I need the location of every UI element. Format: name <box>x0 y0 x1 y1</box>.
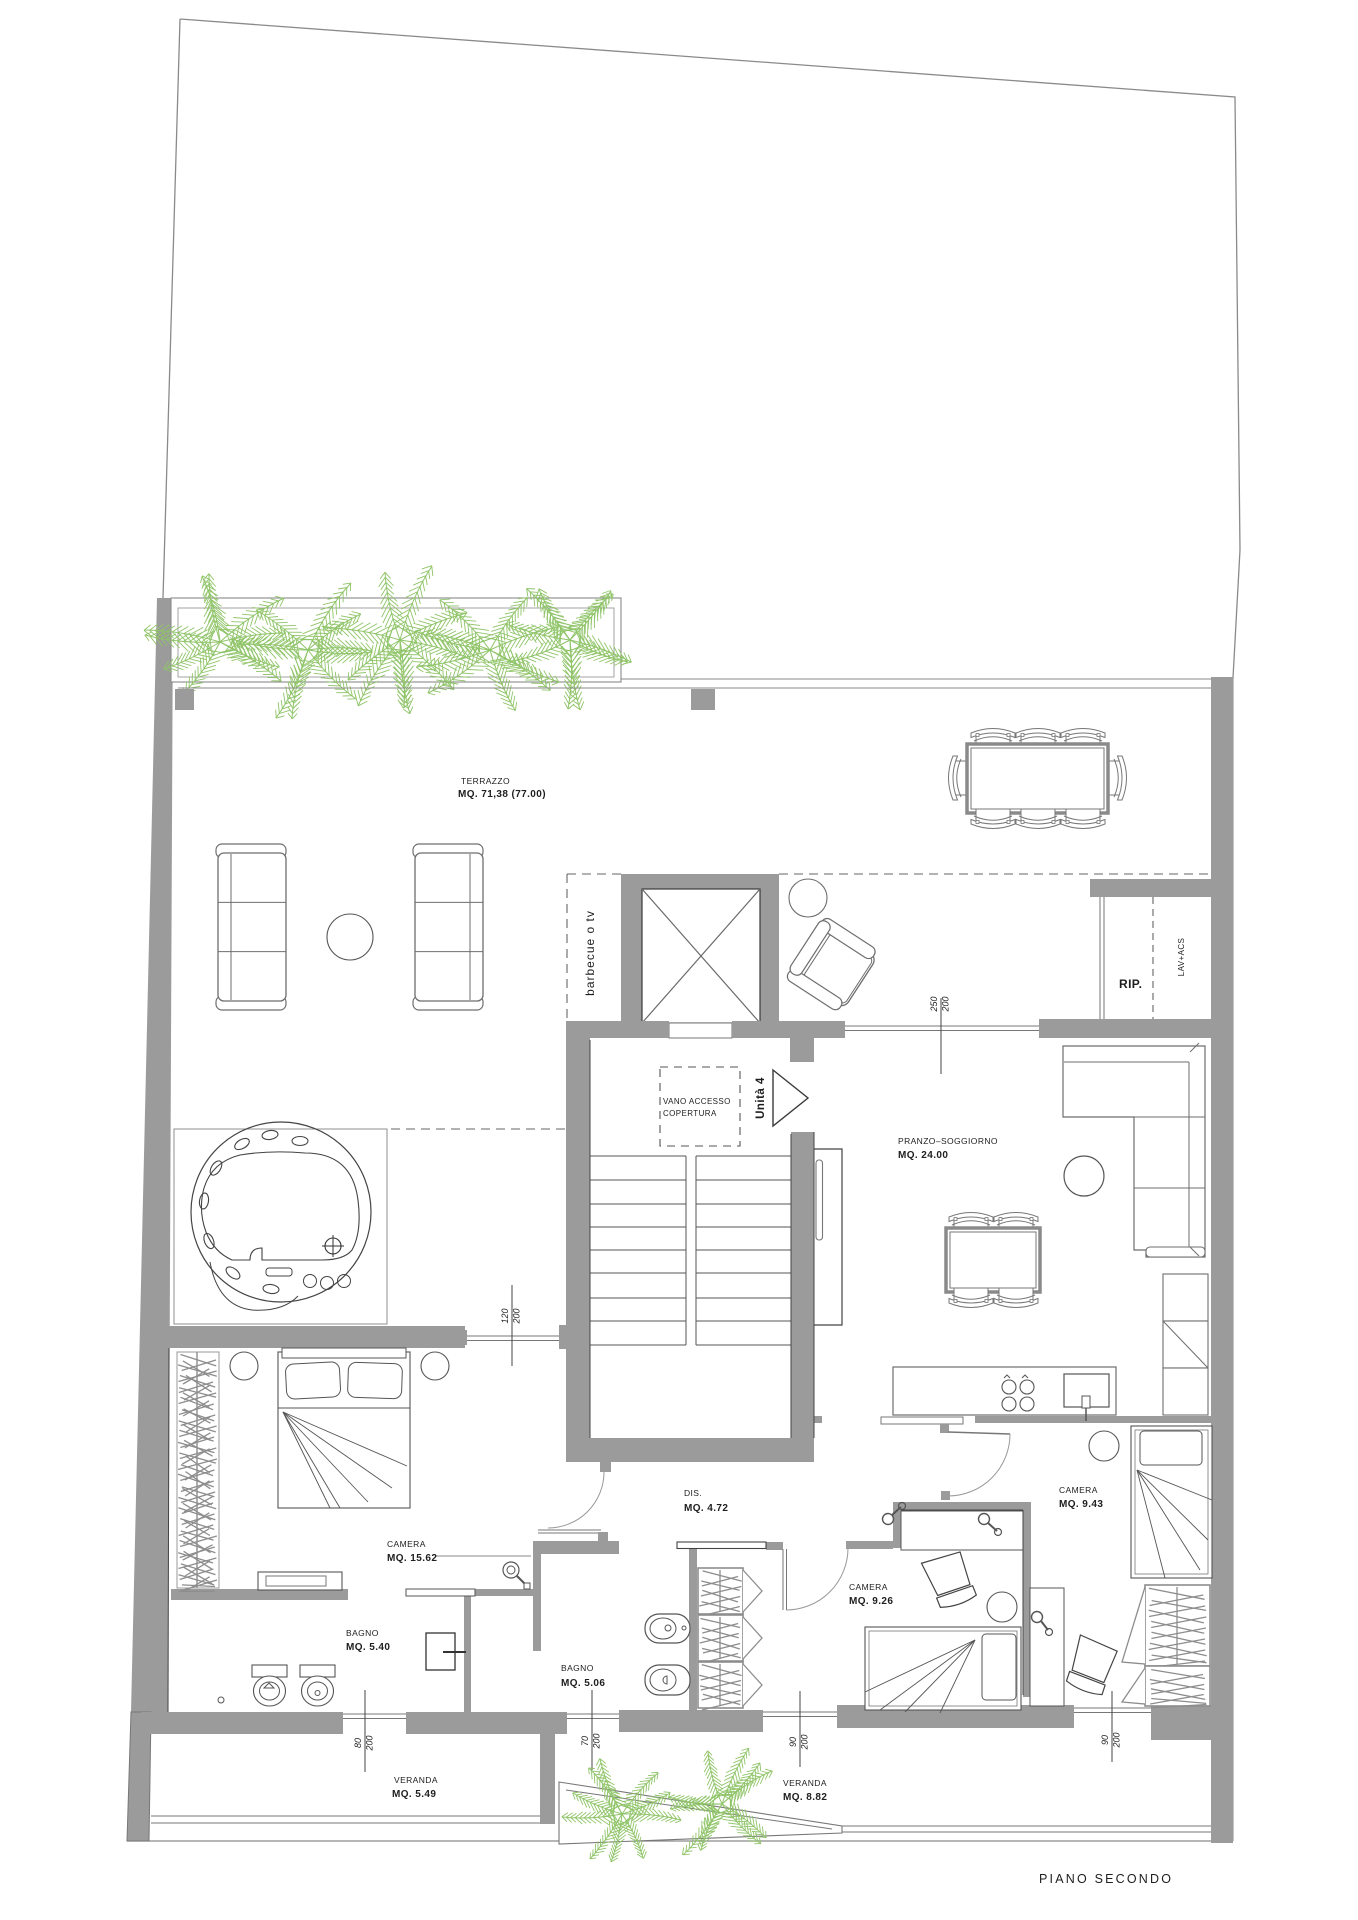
svg-text:MQ. 5.06: MQ. 5.06 <box>561 1678 605 1689</box>
svg-text:200: 200 <box>592 1733 602 1749</box>
svg-text:90: 90 <box>1100 1735 1110 1745</box>
svg-text:TERRAZZO: TERRAZZO <box>461 776 510 786</box>
svg-text:RIP.: RIP. <box>1119 977 1142 991</box>
svg-text:200: 200 <box>365 1735 375 1751</box>
svg-text:200: 200 <box>1112 1732 1122 1748</box>
svg-text:CAMERA: CAMERA <box>387 1539 426 1549</box>
svg-text:BAGNO: BAGNO <box>346 1628 379 1638</box>
svg-text:CAMERA: CAMERA <box>849 1582 888 1592</box>
svg-text:MQ. 24.00: MQ. 24.00 <box>898 1150 948 1161</box>
svg-text:VANO ACCESSO: VANO ACCESSO <box>663 1097 731 1106</box>
svg-text:Unità 4: Unità 4 <box>755 1077 767 1119</box>
svg-text:LAV+ACS: LAV+ACS <box>1177 938 1186 976</box>
svg-text:PIANO SECONDO: PIANO SECONDO <box>1039 1872 1173 1886</box>
svg-text:MQ. 9.43: MQ. 9.43 <box>1059 1499 1103 1510</box>
svg-text:VERANDA: VERANDA <box>783 1778 827 1788</box>
svg-text:COPERTURA: COPERTURA <box>663 1109 717 1118</box>
svg-text:200: 200 <box>800 1734 810 1750</box>
svg-text:MQ. 9.26: MQ. 9.26 <box>849 1596 893 1607</box>
svg-text:VERANDA: VERANDA <box>394 1775 438 1785</box>
svg-text:200: 200 <box>512 1308 522 1324</box>
svg-text:120: 120 <box>500 1308 510 1323</box>
svg-text:BAGNO: BAGNO <box>561 1663 594 1673</box>
svg-text:90: 90 <box>788 1737 798 1747</box>
svg-text:MQ. 4.72: MQ. 4.72 <box>684 1503 728 1514</box>
svg-text:MQ. 8.82: MQ. 8.82 <box>783 1792 827 1803</box>
svg-text:barbecue o tv: barbecue o tv <box>583 910 597 996</box>
svg-text:CAMERA: CAMERA <box>1059 1485 1098 1495</box>
svg-text:200: 200 <box>941 996 951 1012</box>
svg-text:DIS.: DIS. <box>684 1488 702 1498</box>
svg-text:MQ. 71,38 (77.00): MQ. 71,38 (77.00) <box>458 789 546 800</box>
svg-text:250: 250 <box>929 996 939 1012</box>
svg-text:MQ. 15.62: MQ. 15.62 <box>387 1553 437 1564</box>
svg-text:MQ. 5.49: MQ. 5.49 <box>392 1789 436 1800</box>
svg-text:PRANZO–SOGGIORNO: PRANZO–SOGGIORNO <box>898 1136 998 1146</box>
svg-text:MQ. 5.40: MQ. 5.40 <box>346 1642 390 1653</box>
svg-text:80: 80 <box>353 1738 363 1748</box>
svg-text:70: 70 <box>580 1736 590 1746</box>
